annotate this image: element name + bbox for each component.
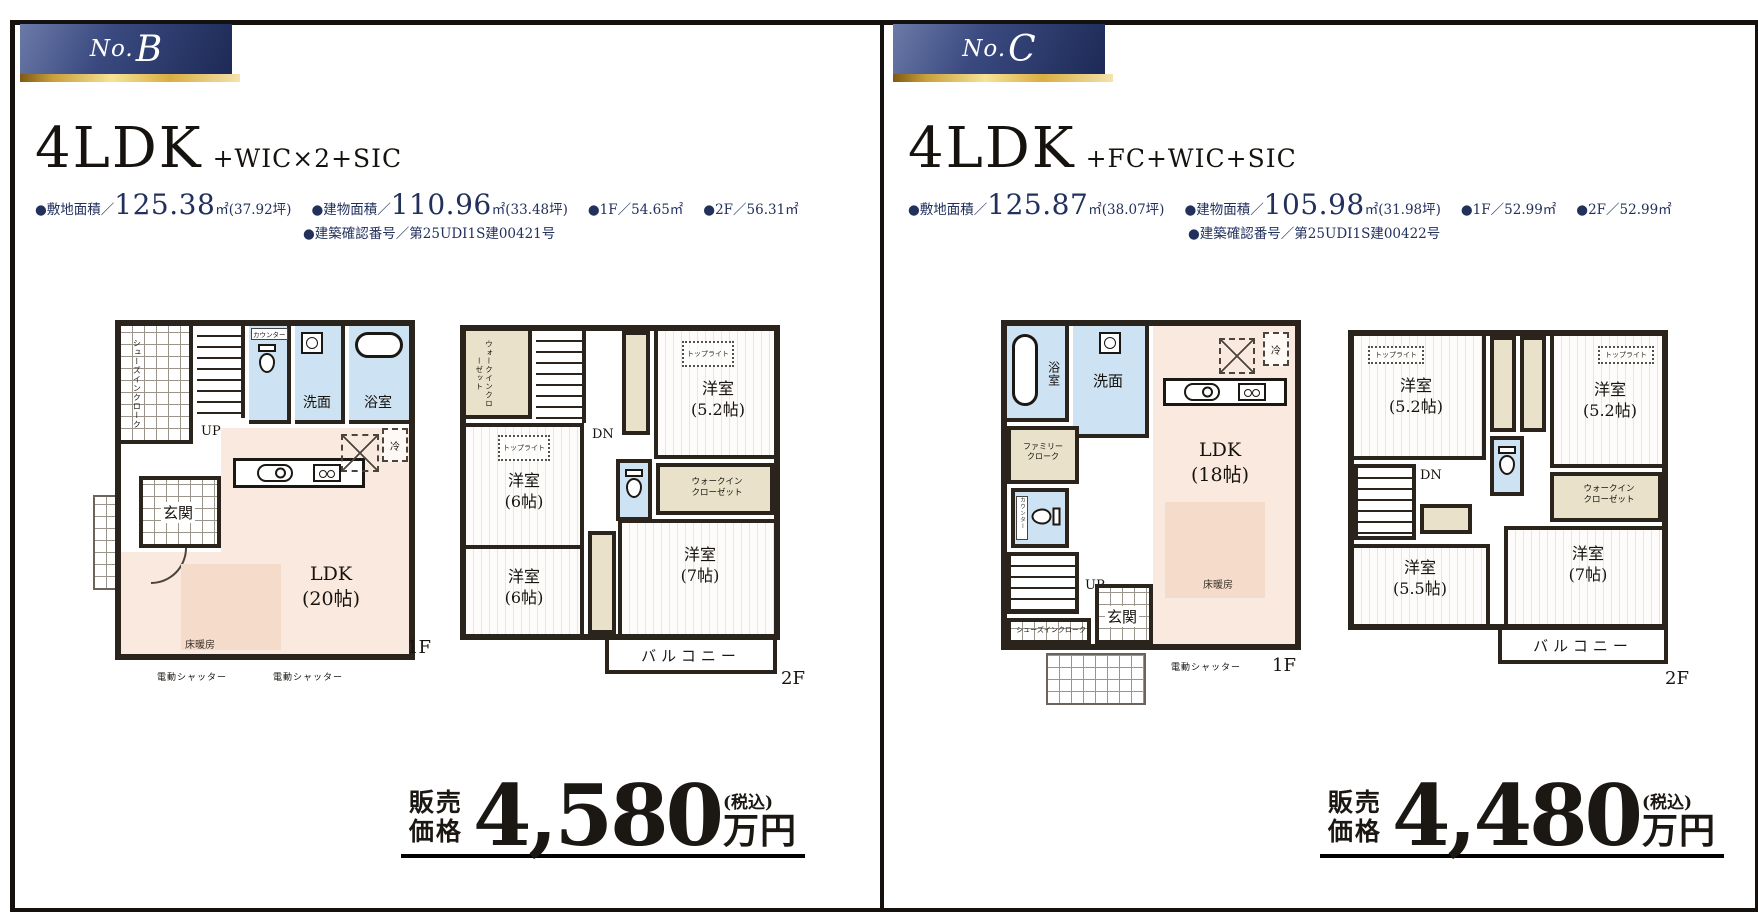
wic-b-line1: ウォークイン bbox=[674, 477, 760, 488]
room-shoes-closet: シューズインクローク bbox=[1007, 618, 1091, 644]
bedroom-a-label: 洋室 (5.2帖) bbox=[676, 379, 760, 421]
room-bedroom-a: トップライト 洋室 (5.2帖) bbox=[654, 331, 774, 459]
bedroom-c-size: (6帖) bbox=[482, 588, 566, 609]
wic-a-label: ウォークインクローゼット bbox=[474, 337, 494, 411]
badge-letter: C bbox=[1008, 29, 1036, 70]
balcony: バルコニー bbox=[605, 640, 777, 674]
toilet-icon bbox=[1498, 446, 1516, 475]
fridge-label: 冷 bbox=[1271, 342, 1281, 357]
spec-2f-area: ●2F／52.99㎡ bbox=[1576, 198, 1671, 218]
counter-label: カウンター bbox=[251, 328, 288, 340]
toilet-icon bbox=[625, 469, 643, 498]
gold-bar bbox=[893, 74, 1113, 82]
kitchen-sink-icon bbox=[1184, 383, 1220, 401]
spec-site: ●敷地面積／125.87㎡(38.07坪) bbox=[908, 188, 1164, 221]
family-closet-line1: ファミリー bbox=[1017, 442, 1069, 452]
toilet-icon bbox=[1032, 508, 1061, 526]
bedroom-b-size: (6帖) bbox=[482, 492, 566, 513]
plan-suffix: +WIC×2+SIC bbox=[213, 144, 403, 173]
room-bedroom-d: 洋室 (7帖) bbox=[618, 519, 774, 634]
wic-b-label: ウォークイン クローゼット bbox=[674, 477, 760, 499]
room-shoes-closet: シューズインクローク bbox=[121, 326, 193, 444]
pantry-marker bbox=[341, 434, 379, 472]
floor-tag-1f: 1F bbox=[407, 637, 431, 658]
closet-strip-b bbox=[1520, 336, 1546, 432]
house-outline: 浴室 洗面 冷 ファミリー クローク bbox=[1001, 320, 1301, 650]
ldk-label: LDK (20帖) bbox=[269, 562, 393, 611]
price-block-b: 販売 価格 4,580 (税込) 万円 bbox=[401, 782, 805, 858]
gold-bar bbox=[20, 74, 240, 82]
floorplan-c-2f: トップライト 洋室 (5.2帖) トップライト 洋室 (5.2帖) bbox=[1343, 320, 1688, 720]
bathtub-icon bbox=[1012, 334, 1038, 406]
house-outline: シューズインクローク UP カウンター 洗面 浴室 bbox=[115, 320, 415, 660]
fridge-marker: 冷 bbox=[382, 428, 408, 462]
fridge-label: 冷 bbox=[390, 438, 400, 453]
unit-badge-c: No. C bbox=[893, 24, 1113, 82]
price-label-line2: 価格 bbox=[1328, 817, 1382, 847]
room-bedroom-b: トップライト 洋室 (5.2帖) bbox=[1550, 336, 1662, 468]
room-toilet bbox=[616, 459, 652, 521]
fridge-marker: 冷 bbox=[1263, 332, 1289, 366]
price-label-line1: 販売 bbox=[1328, 788, 1382, 818]
plan-type: 4LDK bbox=[35, 116, 203, 181]
price-value: 4,480 bbox=[1392, 782, 1640, 851]
closet-strip-b bbox=[588, 531, 616, 634]
floor-tag-1f: 1F bbox=[1272, 655, 1296, 676]
spec-site: ●敷地面積／125.38㎡(37.92坪) bbox=[35, 188, 291, 221]
balcony-label: バルコニー bbox=[641, 645, 741, 666]
bath-label: 浴室 bbox=[1045, 344, 1061, 404]
closet-small bbox=[1420, 504, 1472, 534]
entrance-label: 玄関 bbox=[161, 502, 195, 523]
bedroom-a-size: (5.2帖) bbox=[1374, 397, 1458, 418]
wic-label: ウォークイン クローゼット bbox=[1566, 484, 1652, 506]
house-outline: トップライト 洋室 (5.2帖) トップライト 洋室 (5.2帖) bbox=[1348, 330, 1668, 630]
room-wic-b: ウォークイン クローゼット bbox=[656, 463, 774, 515]
bedroom-b-label: 洋室 (6帖) bbox=[482, 471, 566, 513]
bedroom-b-name: 洋室 bbox=[482, 471, 566, 492]
washer-icon bbox=[301, 332, 323, 354]
bedroom-c-size: (5.5帖) bbox=[1378, 579, 1462, 600]
panel-b: No. B 4LDK +WIC×2+SIC ●敷地面積／125.38㎡(37.9… bbox=[15, 20, 875, 912]
stairs-up bbox=[1007, 552, 1079, 614]
room-bedroom-c: 洋室 (5.5帖) bbox=[1354, 544, 1490, 624]
room-washroom: 洗面 bbox=[1073, 326, 1149, 438]
room-bath: 浴室 bbox=[349, 326, 409, 424]
price-label-line2: 価格 bbox=[409, 817, 463, 847]
toplight-b-label: トップライト bbox=[503, 444, 545, 452]
kitchen-counter bbox=[1163, 378, 1287, 406]
unit-badge-plate: No. B bbox=[20, 24, 232, 74]
toplight-a-label: トップライト bbox=[687, 350, 729, 358]
spec-1f-area: ●1F／52.99㎡ bbox=[1461, 198, 1556, 218]
room-wic-a: ウォークインクローゼット bbox=[466, 331, 532, 419]
plan-type: 4LDK bbox=[908, 116, 1076, 181]
toplight-a-label: トップライト bbox=[1375, 351, 1417, 359]
price-unit: 万円 bbox=[1642, 813, 1716, 849]
entrance-label: 玄関 bbox=[1105, 606, 1139, 627]
floor-heating-label: 床暖房 bbox=[1203, 576, 1233, 591]
shutter-label: 電動シャッター bbox=[1171, 660, 1241, 673]
room-toilet bbox=[1490, 436, 1524, 496]
kitchen-stove-icon bbox=[1238, 383, 1266, 401]
bedroom-c-name: 洋室 bbox=[1378, 558, 1462, 579]
shoes-closet-label: シューズインクローク bbox=[131, 334, 141, 434]
room-family-closet: ファミリー クローク bbox=[1007, 426, 1079, 484]
spec-row-b: ●敷地面積／125.38㎡(37.92坪) ●建物面積／110.96㎡(33.4… bbox=[35, 188, 799, 221]
ldk-name: LDK bbox=[269, 562, 393, 587]
spec-building: ●建物面積／110.96㎡(33.48坪) bbox=[311, 188, 567, 221]
wic-line2: クローゼット bbox=[1566, 495, 1652, 506]
toilet-icon bbox=[258, 344, 276, 373]
bedroom-b-size: (5.2帖) bbox=[1568, 401, 1652, 422]
price-block-c: 販売 価格 4,480 (税込) 万円 bbox=[1320, 782, 1724, 858]
room-bath: 浴室 bbox=[1007, 326, 1069, 422]
price-unit-col: (税込) 万円 bbox=[723, 794, 797, 849]
flyer-sheet: No. B 4LDK +WIC×2+SIC ●敷地面積／125.38㎡(37.9… bbox=[0, 0, 1758, 912]
stairs-down bbox=[1354, 464, 1416, 540]
stairs-up-label: UP bbox=[201, 424, 221, 439]
wic-line1: ウォークイン bbox=[1566, 484, 1652, 495]
balcony: バルコニー bbox=[1498, 630, 1668, 664]
washroom-label: 洗面 bbox=[303, 392, 331, 412]
floor-heating-label: 床暖房 bbox=[185, 636, 215, 651]
counter-label: カウンター bbox=[1016, 496, 1028, 540]
bedroom-d-size: (7帖) bbox=[658, 566, 742, 587]
price-unit: 万円 bbox=[723, 813, 797, 849]
unit-badge-plate: No. C bbox=[893, 24, 1105, 74]
shutter-label-left: 電動シャッター bbox=[157, 670, 227, 683]
bedroom-a-size: (5.2帖) bbox=[676, 400, 760, 421]
washer-icon bbox=[1099, 332, 1121, 354]
bedroom-d-name: 洋室 bbox=[658, 545, 742, 566]
price-label: 販売 価格 bbox=[409, 788, 463, 847]
room-washroom: 洗面 bbox=[295, 326, 345, 424]
unit-badge-b: No. B bbox=[20, 24, 240, 82]
plan-suffix: +FC+WIC+SIC bbox=[1086, 144, 1297, 173]
bedroom-d-label: 洋室 (7帖) bbox=[1546, 544, 1630, 586]
bathtub-icon bbox=[355, 332, 403, 358]
bedroom-c-label: 洋室 (5.5帖) bbox=[1378, 558, 1462, 600]
house-outline: ウォークインクローゼット トップライト 洋室 (5.2帖) DN トップライト … bbox=[460, 325, 780, 640]
toplight-a: トップライト bbox=[1368, 346, 1424, 364]
bedroom-d-name: 洋室 bbox=[1546, 544, 1630, 565]
floorplan-c-1f: 浴室 洗面 冷 ファミリー クローク bbox=[976, 315, 1321, 715]
bedroom-c-name: 洋室 bbox=[482, 567, 566, 588]
floorplan-b-2f: ウォークインクローゼット トップライト 洋室 (5.2帖) DN トップライト … bbox=[455, 320, 800, 720]
price-value: 4,580 bbox=[473, 782, 721, 851]
plan-title-b: 4LDK +WIC×2+SIC bbox=[35, 116, 402, 181]
price-unit-col: (税込) 万円 bbox=[1642, 794, 1716, 849]
room-entrance: 玄関 bbox=[139, 476, 221, 548]
toplight-b: トップライト bbox=[498, 435, 550, 461]
price-label: 販売 価格 bbox=[1328, 788, 1382, 847]
bedroom-a-name: 洋室 bbox=[1374, 376, 1458, 397]
bedroom-b-name: 洋室 bbox=[1568, 380, 1652, 401]
bedroom-b-label: 洋室 (5.2帖) bbox=[1568, 380, 1652, 422]
bedroom-a-label: 洋室 (5.2帖) bbox=[1374, 376, 1458, 418]
plan-title-c: 4LDK +FC+WIC+SIC bbox=[908, 116, 1297, 181]
wic-b-line2: クローゼット bbox=[674, 488, 760, 499]
ldk-label: LDK (18帖) bbox=[1165, 438, 1275, 487]
bedroom-c-label: 洋室 (6帖) bbox=[482, 567, 566, 609]
panel-c: No. C 4LDK +FC+WIC+SIC ●敷地面積／125.87㎡(38.… bbox=[888, 20, 1754, 912]
toplight-a: トップライト bbox=[682, 341, 734, 367]
ldk-size: (18帖) bbox=[1165, 463, 1275, 488]
bedroom-d-size: (7帖) bbox=[1546, 565, 1630, 586]
floor-tag-2f: 2F bbox=[1665, 668, 1689, 689]
balcony-label: バルコニー bbox=[1533, 635, 1633, 656]
panel-divider bbox=[880, 20, 884, 912]
stairs-up bbox=[197, 326, 245, 418]
kitchen-sink-icon bbox=[257, 464, 293, 482]
toplight-b-label: トップライト bbox=[1605, 351, 1647, 359]
spec-confirmation-b: ●建築確認番号／第25UDI1S建00421号 bbox=[303, 222, 555, 242]
porch bbox=[1046, 653, 1146, 705]
room-wic: ウォークイン クローゼット bbox=[1550, 472, 1662, 522]
ldk-size: (20帖) bbox=[269, 587, 393, 612]
bedroom-d-label: 洋室 (7帖) bbox=[658, 545, 742, 587]
stairs-dn-label: DN bbox=[592, 427, 614, 442]
shoes-closet-label: シューズインクローク bbox=[1013, 626, 1089, 635]
badge-prefix: No. bbox=[90, 36, 134, 62]
room-bedroom-b: トップライト 洋室 (6帖) bbox=[466, 423, 584, 545]
room-toilet: カウンター bbox=[1011, 488, 1069, 548]
spec-building: ●建物面積／105.98㎡(31.98坪) bbox=[1184, 188, 1440, 221]
stairs-down bbox=[536, 331, 586, 423]
ldk-name: LDK bbox=[1165, 438, 1275, 463]
shutter-label-right: 電動シャッター bbox=[273, 670, 343, 683]
badge-prefix: No. bbox=[962, 36, 1006, 62]
spec-row-c: ●敷地面積／125.87㎡(38.07坪) ●建物面積／105.98㎡(31.9… bbox=[908, 188, 1672, 221]
room-bedroom-c: 洋室 (6帖) bbox=[466, 545, 584, 634]
toplight-b: トップライト bbox=[1598, 346, 1654, 364]
bedroom-a-name: 洋室 bbox=[676, 379, 760, 400]
price-label-line1: 販売 bbox=[409, 788, 463, 818]
badge-letter: B bbox=[136, 29, 162, 70]
room-bedroom-a: トップライト 洋室 (5.2帖) bbox=[1354, 336, 1486, 460]
spec-confirmation-c: ●建築確認番号／第25UDI1S建00422号 bbox=[1188, 222, 1440, 242]
room-bedroom-d: 洋室 (7帖) bbox=[1504, 526, 1662, 624]
spec-1f-area: ●1F／54.65㎡ bbox=[588, 198, 683, 218]
bath-label: 浴室 bbox=[364, 392, 392, 412]
family-closet-label: ファミリー クローク bbox=[1017, 442, 1069, 463]
floorplan-b-1f: シューズインクローク UP カウンター 洗面 浴室 bbox=[85, 315, 430, 715]
closet-strip-a bbox=[1490, 336, 1516, 432]
kitchen-stove-icon bbox=[313, 464, 341, 482]
spec-2f-area: ●2F／56.31㎡ bbox=[703, 198, 798, 218]
pantry-marker bbox=[1219, 338, 1255, 374]
floor-tag-2f: 2F bbox=[781, 668, 805, 689]
stairs-dn-label: DN bbox=[1420, 468, 1442, 483]
room-entrance: 玄関 bbox=[1095, 584, 1153, 644]
closet-strip-a bbox=[622, 331, 650, 435]
room-toilet: カウンター bbox=[249, 326, 291, 424]
washroom-label: 洗面 bbox=[1093, 370, 1123, 391]
family-closet-line2: クローク bbox=[1017, 452, 1069, 462]
